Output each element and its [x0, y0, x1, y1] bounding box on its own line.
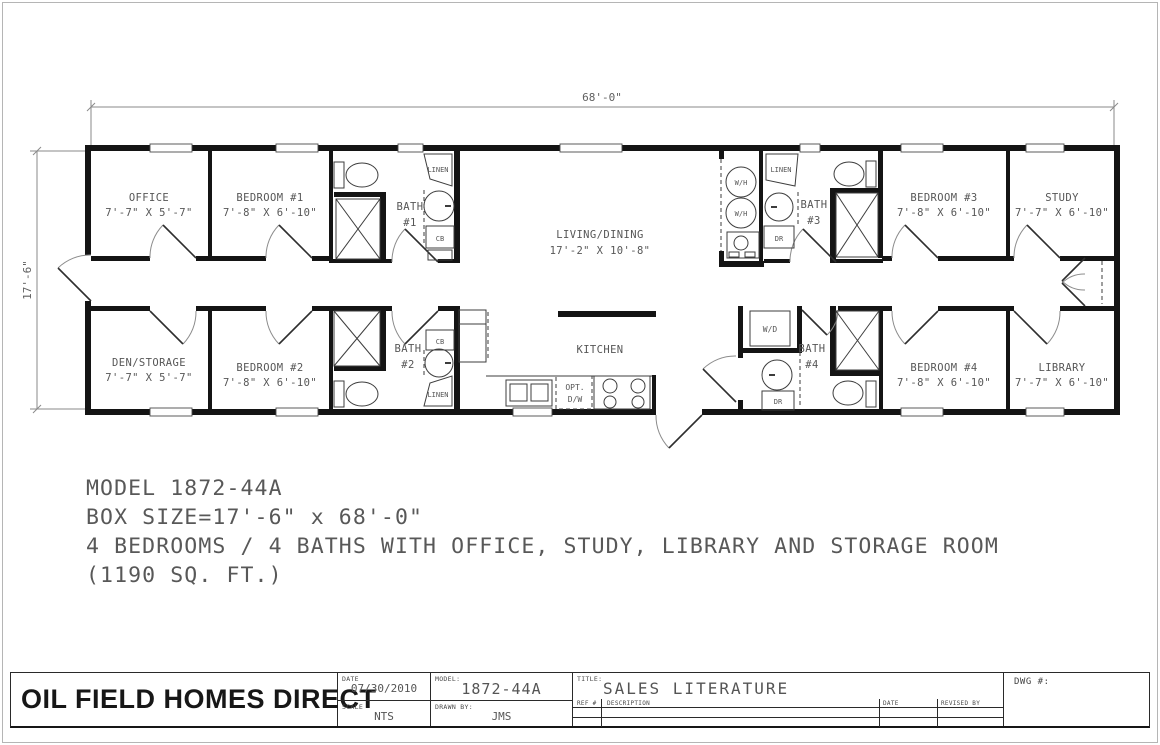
room-label-bath1: BATH — [397, 201, 424, 213]
room-num-bath3: #3 — [807, 215, 820, 227]
bath3-door-arc — [790, 229, 803, 262]
room-label-office: OFFICE — [129, 192, 169, 204]
note-description: 4 BEDROOMS / 4 BATHS WITH OFFICE, STUDY,… — [86, 532, 999, 561]
title-column: TITLE: SALES LITERATURE REF # DESCRIPTIO… — [573, 673, 1004, 726]
toilet-icon — [834, 161, 876, 187]
revised-by-label: REVISED BY — [941, 700, 980, 707]
revision-divider — [937, 699, 938, 727]
room-label-bedroom3: BEDROOM #3 — [910, 192, 977, 204]
utility-fixtures — [721, 159, 1102, 346]
office-door-arc — [150, 225, 163, 258]
room-label-study: STUDY — [1045, 192, 1079, 204]
revision-divider — [879, 699, 880, 727]
revision-table: REF # DESCRIPTION DATE REVISED BY — [573, 699, 1003, 729]
model-drawnby-column: MODEL: 1872-44A DRAWN BY: JMS — [431, 673, 573, 726]
company-name: OIL FIELD HOMES DIRECT — [11, 673, 338, 726]
sink-icon — [765, 193, 793, 221]
ref-label: REF # — [577, 700, 597, 707]
bedroom3-door-leaf — [905, 225, 938, 258]
dr-label: DR — [775, 235, 784, 243]
room-dims-study: 7'-7" X 6'-10" — [1015, 207, 1109, 219]
rear-hall-door-arc — [703, 356, 736, 369]
shower-icon — [836, 311, 879, 370]
room-dims-library: 7'-7" X 6'-10" — [1015, 377, 1109, 389]
study-door-arc — [1014, 225, 1027, 258]
bedroom1-door-leaf — [279, 225, 312, 258]
date-scale-column: DATE 07/30/2010 SCALE NTS — [338, 673, 431, 726]
title-cell: TITLE: SALES LITERATURE — [573, 673, 1003, 699]
room-label-library: LIBRARY — [1038, 362, 1085, 374]
bath2-door-arc — [392, 311, 405, 344]
drawn-by-value: JMS — [431, 710, 572, 723]
note-box-size: BOX SIZE=17'-6" x 68'-0" — [86, 503, 999, 532]
room-dims-living: 17'-2" X 10'-8" — [550, 245, 651, 257]
room-label-bath2: BATH — [395, 343, 422, 355]
bath4-door-leaf — [802, 310, 827, 335]
room-num-bath4: #4 — [805, 359, 818, 371]
title-block: OIL FIELD HOMES DIRECT DATE 07/30/2010 S… — [10, 672, 1150, 728]
closet-door-leaf-lower — [1062, 283, 1085, 306]
scale-value: NTS — [338, 710, 430, 723]
kitchen-sink-icon — [506, 380, 552, 406]
room-label-den: DEN/STORAGE — [112, 357, 186, 369]
room-label-bedroom4: BEDROOM #4 — [910, 362, 977, 374]
toilet-icon — [334, 381, 378, 407]
room-dims-bedroom4: 7'-8" X 6'-10" — [897, 377, 991, 389]
exterior-walls — [85, 145, 1120, 415]
bedroom2-door-leaf — [279, 311, 312, 344]
water-heater-label: W/H — [735, 210, 748, 218]
notes-block: MODEL 1872-44A BOX SIZE=17'-6" x 68'-0" … — [86, 474, 999, 590]
opt-label: OPT. — [565, 383, 584, 392]
dw-label: D/W — [568, 395, 583, 404]
dim-width-label: 68'-0" — [582, 91, 622, 104]
rear-door-leaf — [669, 415, 702, 448]
shower-icon — [336, 199, 380, 259]
room-dims-bedroom3: 7'-8" X 6'-10" — [897, 207, 991, 219]
drawn-by-cell: DRAWN BY: JMS — [431, 701, 572, 728]
kitchen-bar — [558, 311, 656, 317]
den-door-arc — [183, 311, 196, 344]
dishwasher-icon — [556, 376, 592, 409]
sink-icon — [762, 360, 792, 390]
windows — [150, 144, 1064, 416]
bedroom3-door-arc — [892, 225, 905, 258]
revision-row — [573, 708, 1003, 718]
room-dims-office: 7'-7" X 5'-7" — [105, 207, 192, 219]
revision-divider — [601, 699, 602, 727]
dwg-column: DWG #: — [1004, 673, 1151, 726]
rear-door-arc — [656, 415, 669, 448]
room-dims-bedroom2: 7'-8" X 6'-10" — [223, 377, 317, 389]
water-heater-label: W/H — [735, 179, 748, 187]
toilet-icon — [833, 381, 876, 407]
note-model: MODEL 1872-44A — [86, 474, 999, 503]
dim-height-label: 17'-6" — [21, 260, 34, 300]
model-cell: MODEL: 1872-44A — [431, 673, 572, 701]
cb-label: CB — [436, 338, 444, 346]
bathroom-fixtures — [334, 154, 879, 410]
dwg-label: DWG #: — [1014, 677, 1050, 687]
cb-label: CB — [436, 235, 444, 243]
shower-icon — [836, 193, 878, 257]
room-label-bath3: BATH — [801, 199, 828, 211]
floor-plan: 68'-0" 17'-6" — [0, 0, 1160, 470]
front-door-leaf — [58, 268, 91, 301]
rev-date-label: DATE — [883, 700, 899, 707]
revision-header: REF # DESCRIPTION DATE REVISED BY — [573, 699, 1003, 708]
sink-icon — [425, 349, 453, 377]
scale-cell: SCALE NTS — [338, 701, 430, 728]
title-label: TITLE: — [577, 675, 602, 683]
bath1-door-arc — [392, 229, 405, 262]
kitchen-fixtures — [459, 310, 652, 409]
closet-door-leaf-upper — [1062, 258, 1085, 281]
room-num-bath2: #2 — [401, 359, 414, 371]
bedroom4-door-leaf — [905, 311, 938, 344]
library-door-arc — [1047, 311, 1060, 344]
date-value: 07/30/2010 — [338, 682, 430, 695]
linen-label: LINEN — [770, 166, 791, 174]
refrigerator-icon — [459, 310, 488, 362]
room-dims-bedroom1: 7'-8" X 6'-10" — [223, 207, 317, 219]
bedroom2-door-arc — [266, 311, 279, 344]
drawing-sheet: 68'-0" 17'-6" — [0, 0, 1160, 745]
bedroom1-door-arc — [266, 225, 279, 258]
room-dims-den: 7'-7" X 5'-7" — [105, 372, 192, 384]
linen-label: LINEN — [427, 391, 448, 399]
title-value: SALES LITERATURE — [603, 679, 789, 698]
bath1-door-leaf — [405, 229, 438, 262]
model-value: 1872-44A — [431, 680, 572, 698]
date-cell: DATE 07/30/2010 — [338, 673, 430, 701]
room-label-living: LIVING/DINING — [556, 229, 643, 241]
washer-dryer-label: W/D — [763, 325, 778, 334]
room-label-bedroom1: BEDROOM #1 — [236, 192, 303, 204]
description-label: DESCRIPTION — [607, 700, 650, 707]
room-label-bedroom2: BEDROOM #2 — [236, 362, 303, 374]
study-door-leaf — [1027, 225, 1060, 258]
rear-hall-door-leaf — [703, 369, 736, 402]
shower-icon — [334, 311, 380, 366]
stove-icon — [594, 376, 650, 409]
bath2-door-leaf — [405, 311, 438, 344]
den-door-leaf — [150, 311, 183, 344]
bedroom4-door-arc — [892, 311, 905, 344]
front-door-arc — [58, 255, 91, 268]
note-sqft: (1190 SQ. FT.) — [86, 561, 999, 590]
library-door-leaf — [1014, 311, 1047, 344]
linen-label: LINEN — [427, 166, 448, 174]
sink-icon — [424, 191, 454, 221]
dr-label: DR — [774, 398, 783, 406]
furnace-icon — [727, 232, 759, 258]
office-door-leaf — [163, 225, 196, 258]
room-label-bath4: BATH — [799, 343, 826, 355]
toilet-icon — [334, 162, 378, 188]
room-label-kitchen: KITCHEN — [576, 344, 623, 356]
room-num-bath1: #1 — [403, 217, 416, 229]
